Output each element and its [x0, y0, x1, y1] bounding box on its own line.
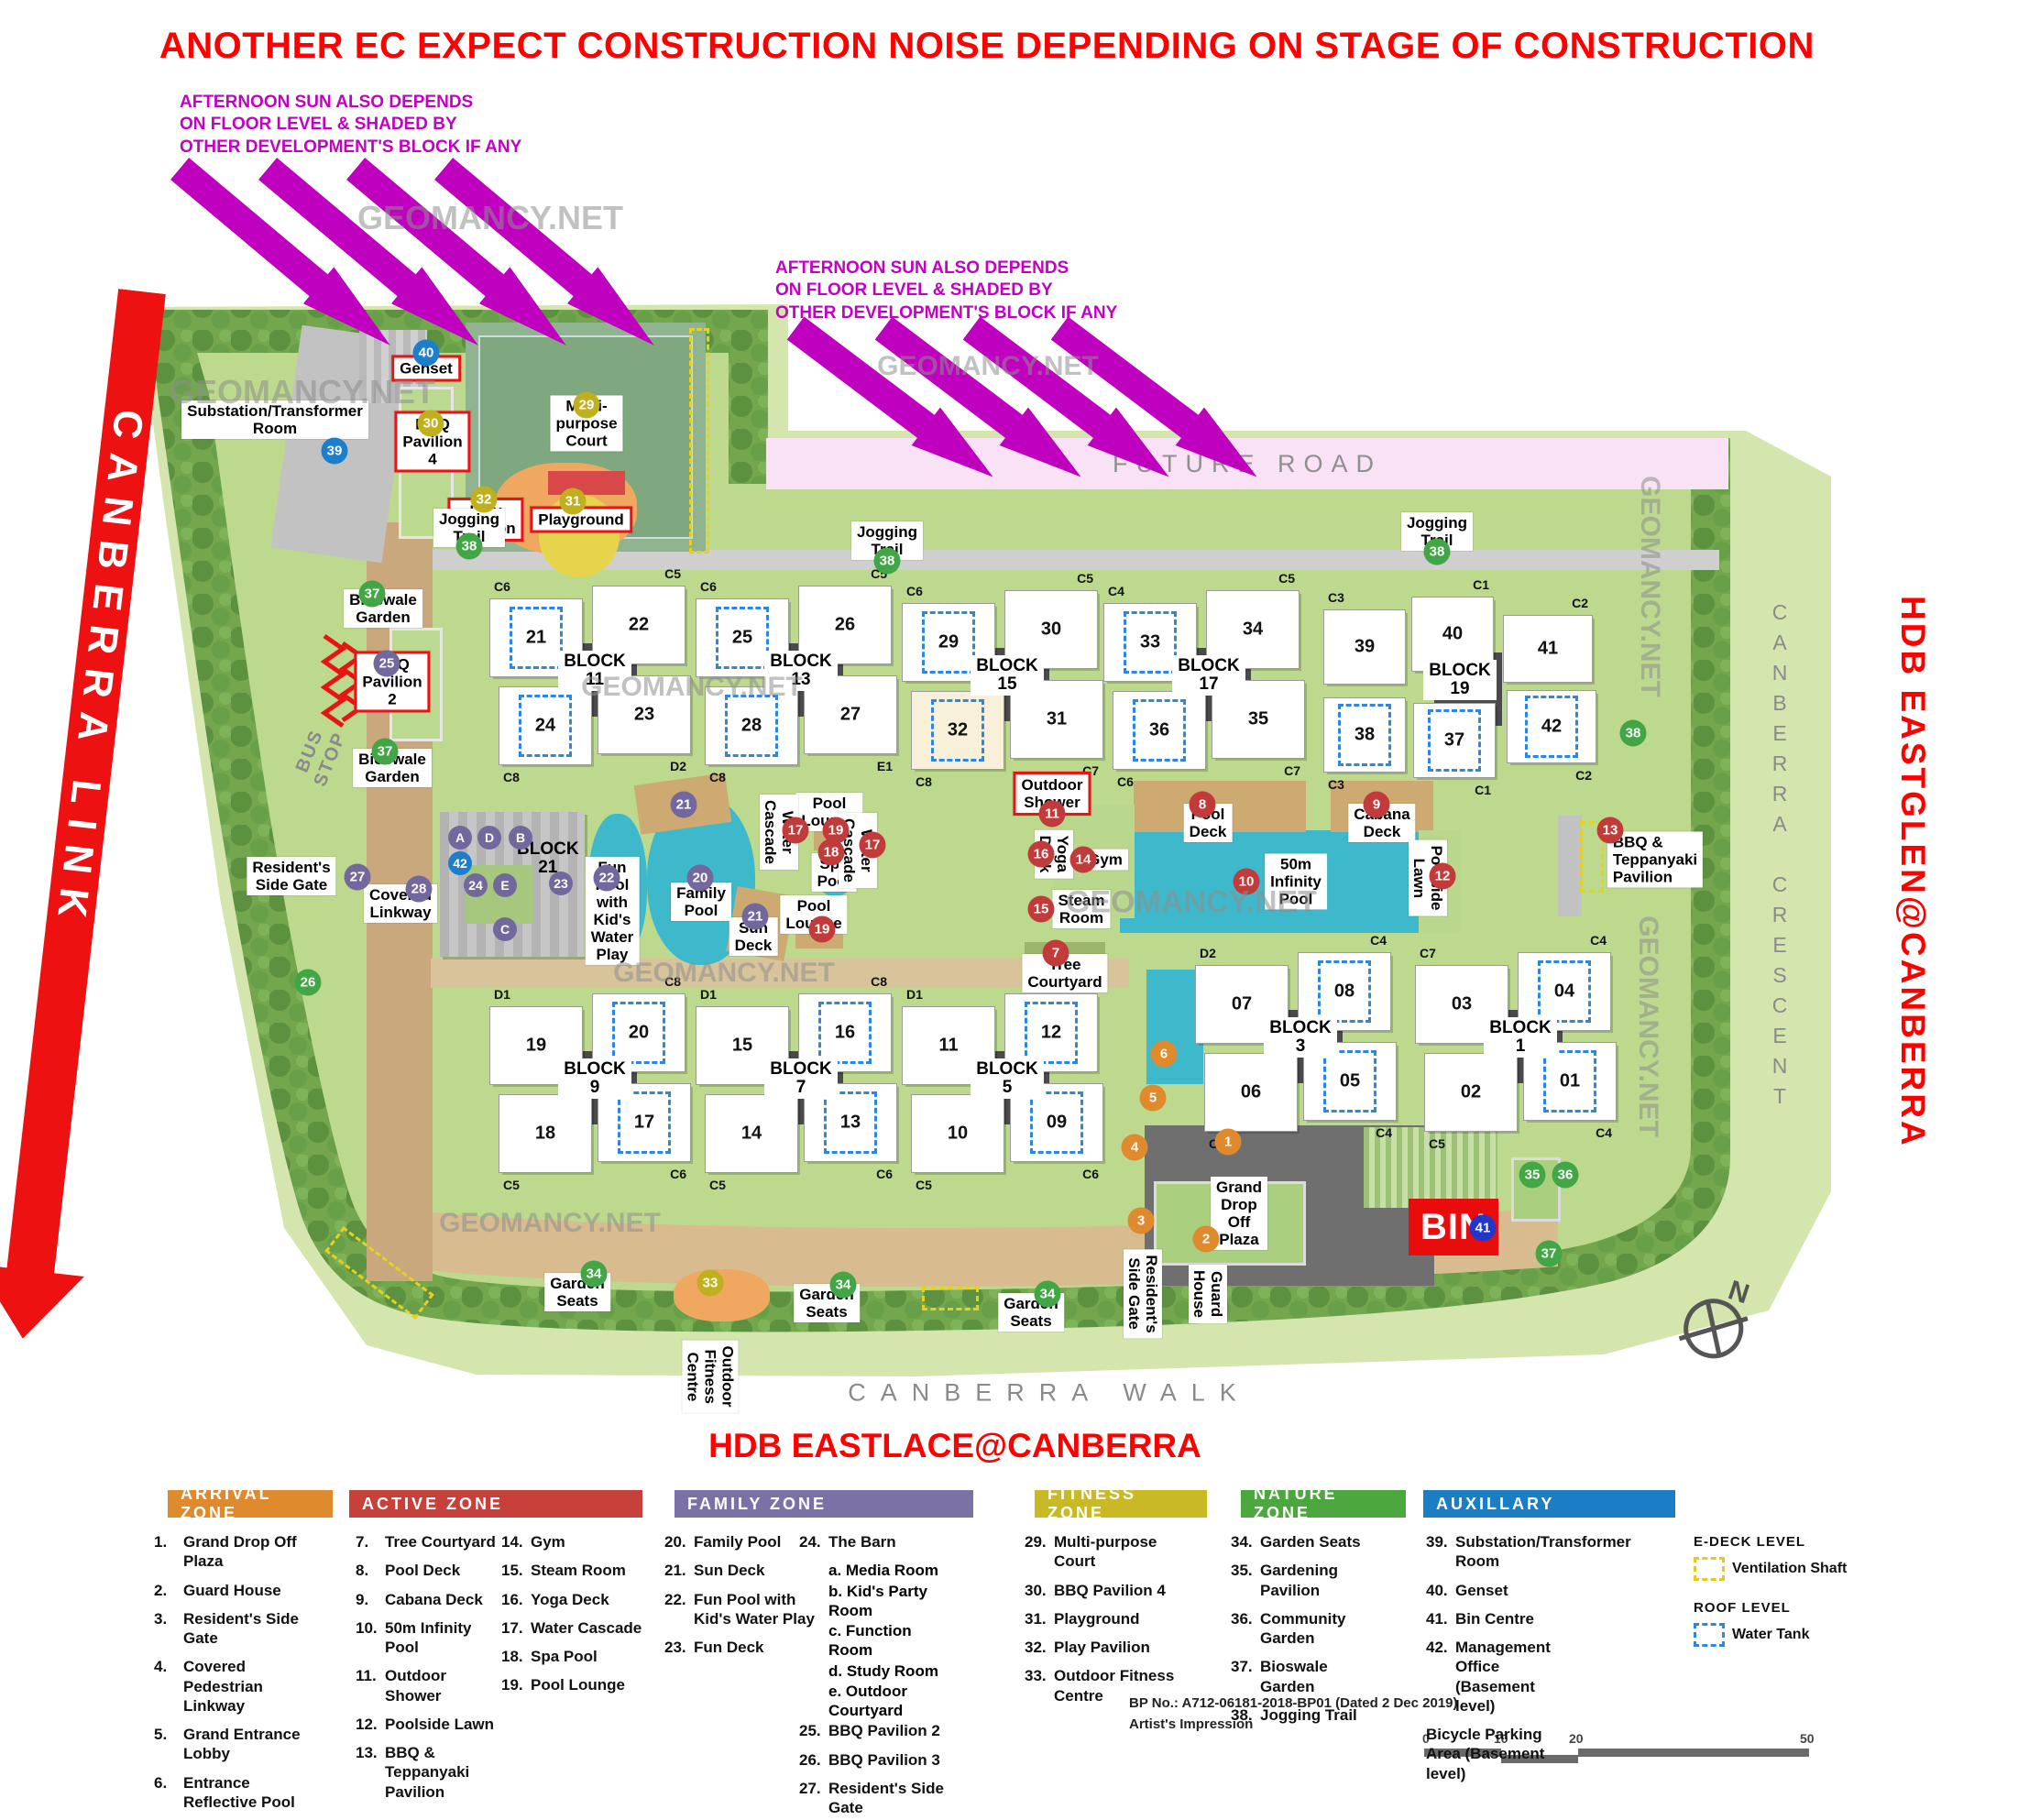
geomancy-watermark: GEOMANCY.NET [170, 373, 435, 411]
unit-type-code: D1 [700, 987, 717, 1002]
legend-item-number: 19. [501, 1675, 531, 1694]
badge-20: 20 [687, 865, 714, 892]
geomancy-watermark: GEOMANCY.NET [439, 1208, 661, 1239]
legend-item-text: Garden Seats [1260, 1532, 1361, 1551]
badge-1: 1 [1215, 1129, 1242, 1156]
map-label-resident-s-side-gate: Resident's Side Gate [1124, 1249, 1162, 1338]
geomancy-watermark: GEOMANCY.NET [1066, 885, 1317, 921]
legend-item: Bicycle Parking Area (Basement level) [1426, 1725, 1577, 1783]
unit-number: 10 [948, 1124, 968, 1145]
legend-item: 13.BBQ & Teppanyaki Pavilion [356, 1743, 507, 1802]
unit-type-code: C8 [709, 770, 726, 784]
unit-number: 05 [1340, 1071, 1360, 1092]
unit-type-code: D2 [1200, 946, 1216, 960]
legend-item: 32.Play Pavilion [1025, 1638, 1176, 1657]
unit-type-code: C6 [876, 1167, 893, 1181]
legend-item: 8.Pool Deck [356, 1561, 507, 1580]
unit-cell: C241 [1504, 616, 1592, 682]
legend-item-number: 20. [664, 1532, 694, 1551]
unit-number: 42 [1541, 717, 1562, 738]
badge-34: 34 [581, 1261, 608, 1288]
legend-item-text: Entrance Reflective Pool [183, 1773, 305, 1813]
unit-type-code: C5 [709, 1178, 726, 1192]
badge-B: B [509, 826, 532, 850]
legend-item: 18.Spa Pool [501, 1647, 653, 1666]
badge-14: 14 [1070, 847, 1097, 873]
badge-24: 24 [464, 873, 488, 897]
unit-cell: C339 [1324, 610, 1405, 684]
legend-item: 27.Resident's Side Gate [799, 1779, 950, 1818]
legend-item-text: Gardening Pavilion [1260, 1561, 1382, 1600]
badge-17: 17 [860, 832, 886, 859]
legend-item-text: BBQ Pavilion 4 [1054, 1581, 1166, 1600]
unit-type-code: C5 [1429, 1136, 1445, 1151]
unit-number: 21 [526, 628, 546, 649]
legend-item-number: 37. [1231, 1657, 1260, 1696]
legend-item-number: 1. [154, 1532, 183, 1572]
compass-n: N [1725, 1275, 1753, 1310]
legend-item-text: Resident's Side Gate [183, 1609, 305, 1649]
unit-type-code: C3 [1328, 590, 1344, 605]
legend-item-text: The Barn [828, 1532, 896, 1551]
legend-column: 14.Gym15.Steam Room16.Yoga Deck17.Water … [501, 1532, 653, 1705]
legend-item-number: 17. [501, 1618, 531, 1638]
badge-32: 32 [471, 487, 498, 513]
legend-item: 36.Community Garden [1231, 1609, 1382, 1649]
legend-item-text: Family Pool [694, 1532, 781, 1551]
legend-item-text: BBQ Pavilion 2 [828, 1721, 940, 1740]
unit-number: 13 [840, 1113, 861, 1134]
unit-type-code: C3 [1328, 777, 1344, 792]
geomancy-watermark: GEOMANCY.NET [1634, 476, 1665, 697]
unit-cell: C832 [912, 692, 1004, 769]
legend-item: 31.Playground [1025, 1609, 1176, 1628]
legend-item: 15.Steam Room [501, 1561, 653, 1580]
legend-item-number: 18. [501, 1647, 531, 1666]
legend-item: 20.Family Pool [664, 1532, 816, 1551]
legend-item-number: 32. [1025, 1638, 1054, 1657]
legend-item-number: 16. [501, 1590, 531, 1609]
legend-item-text: Fun Pool with Kid's Water Play [694, 1590, 815, 1629]
badge-41: 41 [1470, 1215, 1497, 1242]
unit-cell: C824 [499, 687, 591, 764]
residential-block-block-7: D115C816C514C613BLOCK 7 [696, 994, 898, 1178]
unit-type-code: C8 [871, 974, 887, 989]
unit-type-code: D2 [670, 759, 686, 773]
unit-number: 14 [741, 1124, 762, 1145]
unit-type-code: D1 [906, 987, 923, 1002]
badge-7: 7 [1043, 940, 1069, 967]
unit-type-code: C6 [700, 579, 717, 594]
legend-zone-header-arrival-zone: ARRIVAL ZONE [168, 1490, 333, 1518]
residential-block-block-3: D207C408C506C405BLOCK 3 [1196, 953, 1398, 1136]
map-label-resident-s-side-gate: Resident's Side Gate [247, 857, 335, 895]
badge-36: 36 [1552, 1162, 1579, 1189]
legend-item-number: 42. [1426, 1638, 1455, 1716]
legend-item: 17.Water Cascade [501, 1618, 653, 1638]
unit-number: 03 [1452, 994, 1472, 1015]
badge-40: 40 [413, 340, 440, 367]
legend-item: 12.Poolside Lawn [356, 1715, 507, 1734]
unit-number: 01 [1560, 1071, 1580, 1092]
sun-note-left: AFTERNOON SUN ALSO DEPENDS ON FLOOR LEVE… [180, 92, 521, 159]
legend-item-number: 30. [1025, 1581, 1054, 1600]
unit-number: 07 [1232, 994, 1252, 1015]
badge-19: 19 [809, 916, 836, 943]
legend-item: 6.Entrance Reflective Pool [154, 1773, 305, 1813]
legend-item-number: 8. [356, 1561, 385, 1580]
legend-item-text: Grand Entrance Lobby [183, 1725, 305, 1764]
unit-type-code: C5 [664, 566, 681, 581]
badge-21: 21 [671, 792, 697, 818]
unit-type-code: E1 [877, 759, 893, 773]
badge-38: 38 [456, 533, 483, 560]
legend-column: 7.Tree Courtyard8.Pool Deck9.Cabana Deck… [356, 1532, 507, 1811]
legend-item-number: 9. [356, 1590, 385, 1609]
water-tank-swatch [1694, 1623, 1725, 1647]
geomancy-watermark: GEOMANCY.NET [581, 672, 803, 703]
legend-item-number: 33. [1025, 1666, 1054, 1705]
unit-cell: C506 [1205, 1054, 1297, 1131]
badge-D: D [477, 826, 501, 850]
block-name-label: BLOCK 9 [558, 1058, 631, 1099]
unit-type-code: D1 [494, 987, 510, 1002]
badge-E: E [493, 873, 517, 897]
legend-item-number: 21. [664, 1561, 694, 1580]
legend-item-number: 38. [1231, 1705, 1260, 1725]
legend-item-text: Grand Drop Off Plaza [183, 1532, 305, 1572]
residential-block-block-5: D111C812C510C609BLOCK 5 [903, 994, 1104, 1178]
canberra-crescent-label: CANBERRA CRESCENT [1767, 600, 1792, 1114]
legend-item: 26.BBQ Pavilion 3 [799, 1750, 950, 1770]
residential-block-block-9: D119C820C518C617BLOCK 9 [490, 994, 692, 1178]
unit-type-code: C8 [503, 770, 520, 784]
legend-item-text: Jogging Trail [1260, 1705, 1357, 1725]
hdb-eastlace-label: HDB EASTLACE@CANBERRA [708, 1427, 1201, 1465]
unit-number: 38 [1355, 725, 1375, 746]
residential-block-block-17: C433C534C636C735BLOCK 17 [1104, 591, 1306, 774]
legend-item: 16.Yoga Deck [501, 1590, 653, 1609]
badge-27: 27 [345, 864, 371, 891]
badge-A: A [448, 826, 472, 850]
badge-5: 5 [1140, 1085, 1167, 1112]
legend-subitem: a. Media Room [828, 1561, 950, 1580]
unit-type-code: C4 [1590, 933, 1607, 948]
unit-cell: C510 [912, 1095, 1004, 1172]
badge-2: 2 [1193, 1226, 1220, 1253]
canberra-walk-label: CANBERRA WALK [848, 1379, 1251, 1408]
map-label-bbq-teppanyaki-pavilion: BBQ & Teppanyaki Pavilion [1607, 831, 1703, 887]
unit-number: 40 [1442, 624, 1463, 645]
legend-item-number: 39. [1426, 1532, 1455, 1572]
unit-number: 18 [535, 1124, 555, 1145]
unit-type-code: C5 [503, 1178, 520, 1192]
legend-item-number: 4. [154, 1657, 183, 1716]
unit-number: 35 [1248, 709, 1268, 730]
unit-number: 11 [938, 1036, 958, 1057]
future-road-band: FUTURE ROAD [766, 438, 1728, 489]
unit-cell: C518 [499, 1095, 591, 1172]
playground-slide [548, 471, 625, 495]
unit-cell: C137 [1414, 704, 1495, 777]
legend-item-text: 50m Infinity Pool [385, 1618, 507, 1658]
legend-item: 2.Guard House [154, 1581, 305, 1600]
site-plan-canvas: BIN BUS STOP FUTURE ROAD ANOTHER EC EXPE… [0, 0, 2040, 1820]
unit-type-code: C6 [670, 1167, 686, 1181]
unit-number: 04 [1554, 981, 1574, 1003]
unit-number: 15 [732, 1036, 752, 1057]
unit-number: 25 [732, 628, 752, 649]
residential-block-block-19: C339C140C241C338C137C242BLOCK 19 [1324, 596, 1599, 779]
badge-38: 38 [874, 548, 901, 575]
unit-number: 26 [835, 615, 855, 636]
badge-37: 37 [359, 581, 386, 608]
badge-12: 12 [1430, 863, 1456, 890]
unit-number: 28 [741, 716, 762, 737]
block-name-label: BLOCK 1 [1484, 1017, 1557, 1058]
badge-33: 33 [697, 1270, 724, 1297]
legend-item: 19.Pool Lounge [501, 1675, 653, 1694]
unit-cell: C636 [1113, 692, 1205, 769]
legend-item-text: Yoga Deck [531, 1590, 609, 1609]
legend-item-text: Gym [531, 1532, 565, 1551]
unit-type-code: C7 [1284, 763, 1300, 778]
badge-39: 39 [322, 438, 348, 465]
legend-item-number: 26. [799, 1750, 828, 1770]
legend-item-text: Genset [1455, 1581, 1508, 1600]
unit-number: 39 [1355, 637, 1375, 658]
legend-item-number: 13. [356, 1743, 385, 1802]
unit-number: 41 [1538, 639, 1558, 660]
legend-item: 4.Covered Pedestrian Linkway [154, 1657, 305, 1716]
unit-type-code: C1 [1475, 783, 1491, 797]
unit-type-code: C2 [1572, 596, 1588, 610]
legend-item-number: 6. [154, 1773, 183, 1813]
legend-item-text: BBQ & Teppanyaki Pavilion [385, 1743, 507, 1802]
legend-item: 34.Garden Seats [1231, 1532, 1382, 1551]
legend-item: 38.Jogging Trail [1231, 1705, 1382, 1725]
unit-type-code: C6 [1117, 774, 1134, 789]
legend-item-number: 15. [501, 1561, 531, 1580]
unit-number: 08 [1334, 981, 1355, 1003]
unit-cell: C502 [1425, 1054, 1517, 1131]
legend-column: 24.The Barna. Media Roomb. Kid's Party R… [799, 1532, 950, 1820]
unit-number: 29 [938, 632, 959, 653]
legend-item-number: 7. [356, 1532, 385, 1551]
legend-item-number: 3. [154, 1609, 183, 1649]
legend-zone-header-fitness-zone: FITNESS ZONE [1035, 1490, 1207, 1518]
legend-item-text: Community Garden [1260, 1609, 1382, 1649]
unit-number: 17 [634, 1113, 654, 1134]
block-name-label: BLOCK 15 [971, 655, 1044, 696]
legend-item-text: Pool Deck [385, 1561, 460, 1580]
badge-26: 26 [295, 970, 322, 996]
legend-item-text: Multi-purpose Court [1054, 1532, 1176, 1572]
legend-item-text: Water Cascade [531, 1618, 642, 1638]
badge-38: 38 [1424, 539, 1451, 565]
legend-zone-header-family-zone: FAMILY ZONE [675, 1490, 973, 1518]
unit-type-code: C8 [916, 774, 932, 789]
badge-11: 11 [1039, 801, 1066, 828]
legend-zone-header-nature-zone: NATURE ZONE [1241, 1490, 1406, 1518]
legend-item-number: 41. [1426, 1609, 1455, 1628]
badge-6: 6 [1151, 1041, 1178, 1068]
legend-item-number: 29. [1025, 1532, 1054, 1572]
legend-column: 34.Garden Seats35.Gardening Pavilion36.C… [1231, 1532, 1382, 1734]
ventilation-shaft-south [922, 1287, 979, 1310]
block-name-label: BLOCK 5 [971, 1058, 1044, 1099]
legend-item: 40.Genset [1426, 1581, 1577, 1600]
badge-28: 28 [406, 876, 433, 903]
unit-number: 19 [526, 1036, 546, 1057]
unit-number: 12 [1041, 1023, 1061, 1044]
legend-item-text: Cabana Deck [385, 1590, 483, 1609]
legend-item-text: Bioswale Garden [1260, 1657, 1382, 1696]
legend-item: 30.BBQ Pavilion 4 [1025, 1581, 1176, 1600]
unit-number: 23 [634, 705, 654, 726]
unit-type-code: C6 [906, 584, 923, 598]
unit-type-code: C2 [1575, 768, 1592, 783]
legend-item: 37.Bioswale Garden [1231, 1657, 1382, 1696]
legend-item-number: 10. [356, 1618, 385, 1658]
unit-number: 06 [1241, 1082, 1261, 1103]
badge-18: 18 [818, 839, 845, 866]
badge-34: 34 [1035, 1281, 1061, 1308]
badge-C: C [493, 917, 517, 941]
geomancy-watermark: GEOMANCY.NET [877, 351, 1099, 382]
badge-42: 42 [448, 851, 472, 875]
legend-item-text: Guard House [183, 1581, 281, 1600]
legend-item-number: 35. [1231, 1561, 1260, 1600]
legend-column: 1.Grand Drop Off Plaza2.Guard House3.Res… [154, 1532, 305, 1820]
legend-item-text: Fun Deck [694, 1638, 764, 1657]
legend-item-text: Management Office (Basement level) [1455, 1638, 1577, 1716]
legend-item-text: Poolside Lawn [385, 1715, 494, 1734]
unit-type-code: C5 [1278, 571, 1295, 586]
unit-type-code: C1 [1473, 577, 1489, 592]
legend-item-number: 27. [799, 1779, 828, 1818]
legend-item-text: Covered Pedestrian Linkway [183, 1657, 305, 1716]
residential-block-block-15: C629C530C832C731BLOCK 15 [903, 591, 1104, 774]
badge-35: 35 [1519, 1162, 1546, 1189]
legend-item: 24.The Barn [799, 1532, 950, 1551]
legend-item-text: Resident's Side Gate [828, 1779, 950, 1818]
geomancy-watermark: GEOMANCY.NET [357, 199, 623, 237]
unit-type-code: C6 [1082, 1167, 1099, 1181]
unit-number: 34 [1243, 619, 1263, 641]
legend-zone-header-active-zone: ACTIVE ZONE [349, 1490, 642, 1518]
legend-item-text: Tree Courtyard [385, 1532, 496, 1551]
badge-25: 25 [374, 651, 400, 677]
legend-item-number: 36. [1231, 1609, 1260, 1649]
legend-item-text: Spa Pool [531, 1647, 598, 1666]
badge-15: 15 [1028, 896, 1055, 923]
badge-37: 37 [1536, 1241, 1563, 1267]
legend-item: 5.Grand Entrance Lobby [154, 1725, 305, 1764]
block-name-label: BLOCK 17 [1172, 655, 1245, 696]
geomancy-watermark: GEOMANCY.NET [1632, 915, 1663, 1137]
unit-number: 37 [1444, 730, 1464, 751]
legend-item: 22.Fun Pool with Kid's Water Play [664, 1590, 816, 1629]
construction-noise-title: ANOTHER EC EXPECT CONSTRUCTION NOISE DEP… [159, 26, 1815, 67]
legend-subitem: e. Outdoor Courtyard [828, 1682, 950, 1721]
legend-item-text: Play Pavilion [1054, 1638, 1150, 1657]
legend-item-text: Substation/Transformer Room [1455, 1532, 1631, 1572]
map-label-outdoor-fitness-centre: Outdoor Fitness Centre [682, 1340, 738, 1412]
badge-13: 13 [1597, 817, 1624, 844]
legend-item: 39.Substation/Transformer Room [1426, 1532, 1577, 1572]
legend-item: 35.Gardening Pavilion [1231, 1561, 1382, 1600]
badge-17: 17 [783, 817, 809, 844]
legend-item-number: 12. [356, 1715, 385, 1734]
hdb-eastglen-label: HDB EASTGLEN@CANBERRA [1893, 596, 1932, 1148]
roof-level-key: ROOF LEVEL Water Tank [1694, 1600, 1809, 1647]
unit-number: 24 [535, 716, 555, 737]
legend-item-text: Bicycle Parking Area (Basement level) [1426, 1725, 1577, 1783]
badge-21: 21 [742, 904, 769, 930]
legend-item: 7.Tree Courtyard [356, 1532, 507, 1551]
legend-item: 25.BBQ Pavilion 2 [799, 1721, 950, 1740]
unit-number: 09 [1047, 1113, 1067, 1134]
edeck-level-title: E-DECK LEVEL [1694, 1534, 1847, 1550]
legend-item-number: 24. [799, 1532, 828, 1551]
unit-number: 27 [840, 705, 861, 726]
legend-item-text: Outdoor Fitness Centre [1054, 1666, 1176, 1705]
entrance-reflective-pool-water [1146, 970, 1203, 1084]
legend-item-text: Bin Centre [1455, 1609, 1534, 1628]
legend-item: 9.Cabana Deck [356, 1590, 507, 1609]
teppanyaki-pavilion-building [1558, 816, 1582, 916]
legend-item-number: 40. [1426, 1581, 1455, 1600]
sun-note-center: AFTERNOON SUN ALSO DEPENDS ON FLOOR LEVE… [775, 258, 1117, 324]
legend-item: 29.Multi-purpose Court [1025, 1532, 1176, 1572]
legend-item-number: 34. [1231, 1532, 1260, 1551]
edeck-level-key: E-DECK LEVEL Ventilation Shaft [1694, 1534, 1847, 1581]
unit-type-code: C5 [1077, 571, 1093, 586]
unit-number: 30 [1041, 619, 1061, 641]
unit-cell: C514 [706, 1095, 797, 1172]
water-tank-label: Water Tank [1732, 1627, 1809, 1643]
legend-item-text: Pool Lounge [531, 1675, 625, 1694]
roof-level-title: ROOF LEVEL [1694, 1600, 1809, 1616]
badge-29: 29 [574, 392, 600, 419]
legend-item-number: 5. [154, 1725, 183, 1764]
legend-item-text: BBQ Pavilion 3 [828, 1750, 940, 1770]
unit-type-code: C4 [1108, 584, 1124, 598]
unit-cell: C242 [1508, 691, 1596, 762]
legend-item: 10.50m Infinity Pool [356, 1618, 507, 1658]
legend-column: 20.Family Pool21.Sun Deck22.Fun Pool wit… [664, 1532, 816, 1666]
unit-type-code: C6 [494, 579, 510, 594]
legend-item: 41.Bin Centre [1426, 1609, 1577, 1628]
legend-column: 29.Multi-purpose Court30.BBQ Pavilion 43… [1025, 1532, 1176, 1715]
unit-number: 16 [835, 1023, 855, 1044]
ventilation-shaft-swatch [1694, 1557, 1725, 1581]
badge-4: 4 [1122, 1135, 1148, 1161]
geomancy-watermark: GEOMANCY.NET [613, 958, 835, 989]
unit-number: 33 [1140, 632, 1160, 653]
block-name-label: BLOCK 19 [1423, 660, 1497, 700]
map-label-guard-house: Guard House [1189, 1265, 1227, 1323]
unit-number: 22 [629, 615, 649, 636]
badge-34: 34 [830, 1272, 857, 1299]
legend-subitem: c. Function Room [828, 1621, 950, 1661]
badge-37: 37 [372, 739, 399, 765]
badge-23: 23 [549, 872, 573, 895]
legend-item-number: 11. [356, 1666, 385, 1705]
unit-number: 31 [1047, 709, 1067, 730]
unit-number: 36 [1149, 720, 1169, 741]
